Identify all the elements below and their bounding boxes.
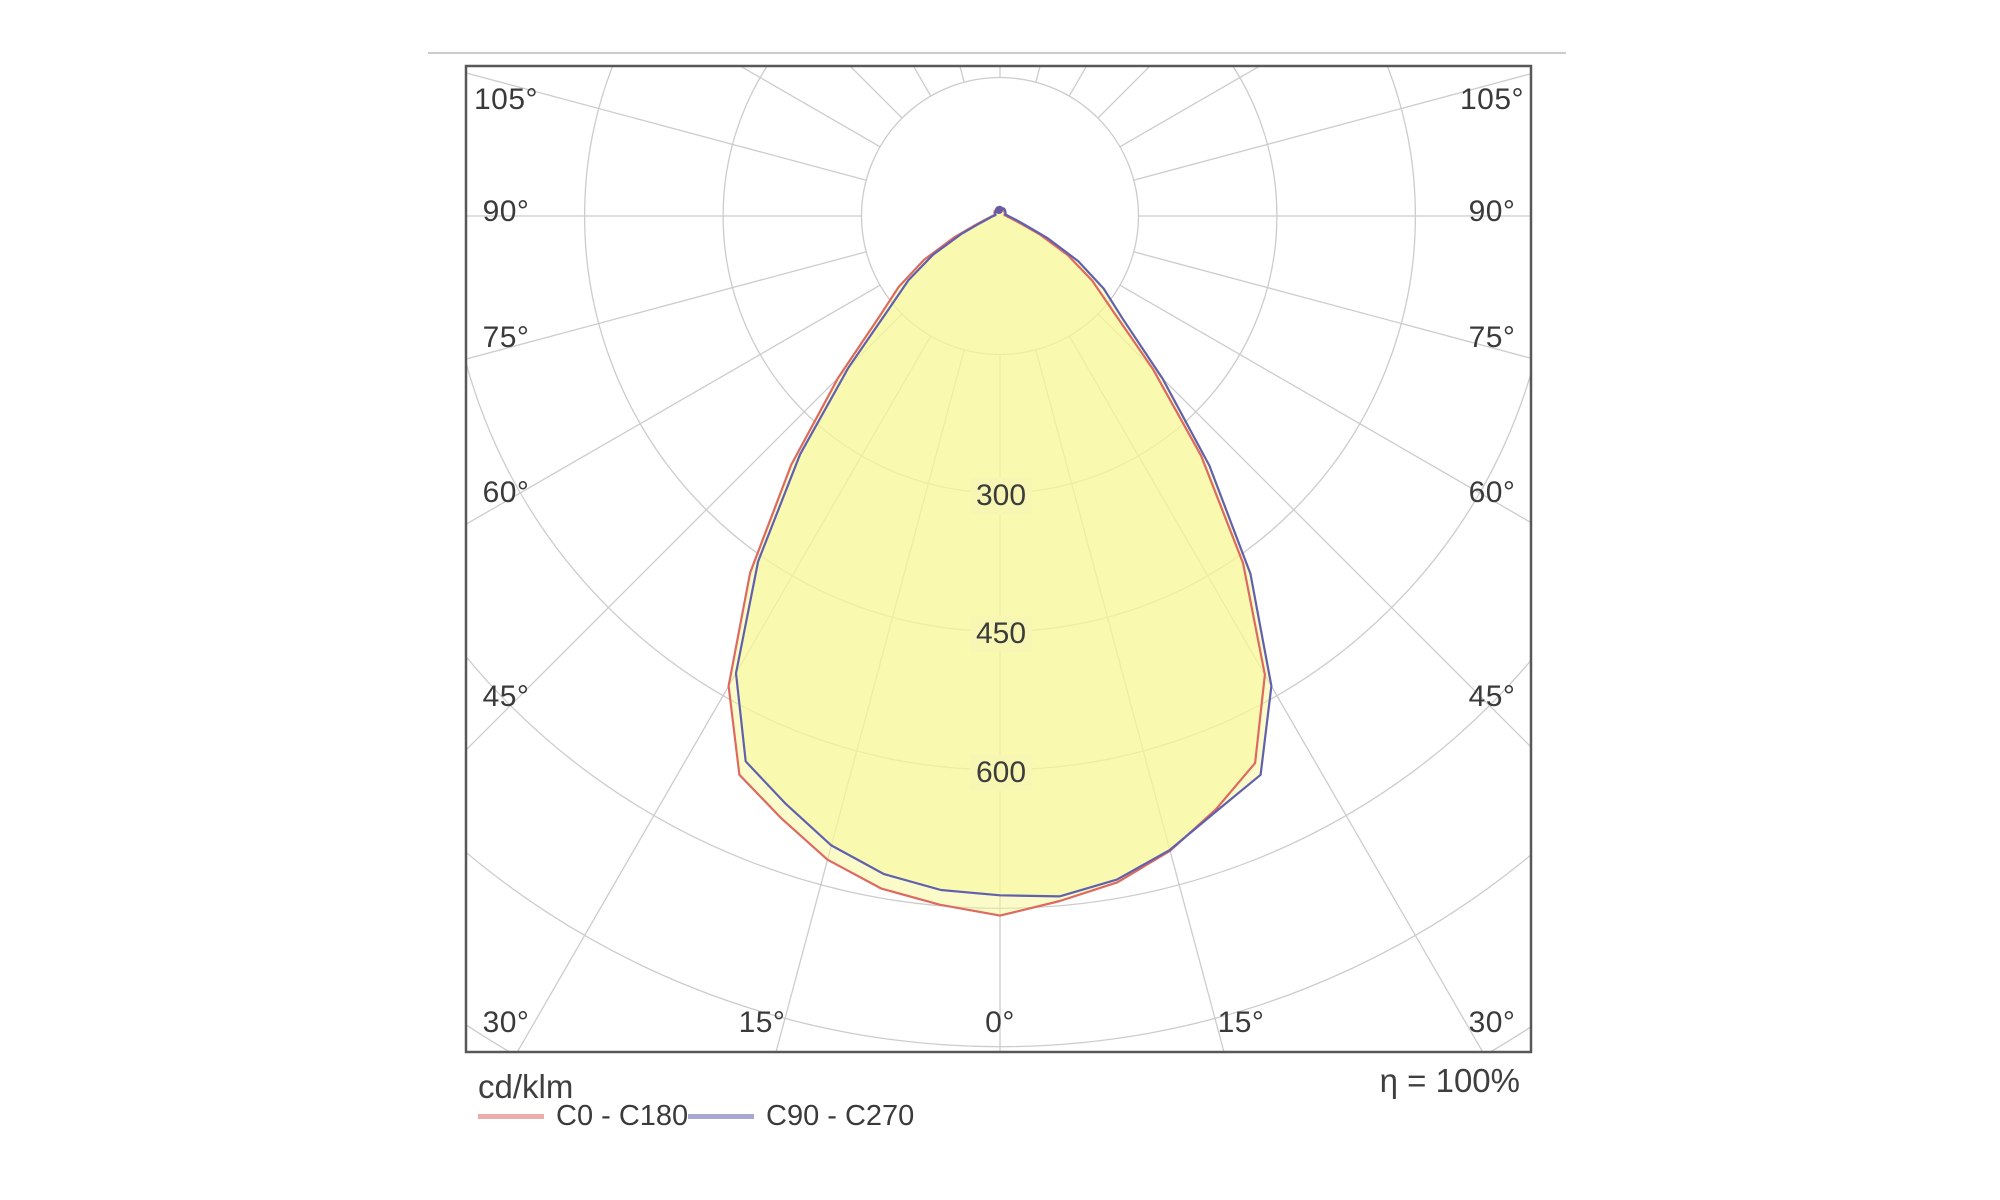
legend-label-c0-c180: C0 - C180	[556, 1100, 688, 1133]
angle-label-bottom-15deg: 15°	[1218, 1006, 1265, 1040]
legend-swatch-c90-c270	[688, 1114, 754, 1119]
legend-item-c90-c270: C90 - C270	[688, 1100, 914, 1133]
angle-label-right-30deg: 30°	[1469, 1006, 1516, 1040]
grid-ray-120	[1120, 0, 1996, 147]
grid-ray-225	[187, 0, 902, 118]
radial-value-label-600: 600	[970, 755, 1032, 791]
grid-ray-135	[1098, 0, 1813, 118]
curve-fill-c90-c270	[736, 207, 1271, 897]
grid-ray-240	[4, 0, 880, 147]
grid-ray-285	[0, 252, 866, 514]
grid-ray-255	[0, 0, 866, 180]
photometric-diagram: 105°90°75°60°45°30°105°90°75°60°45°30°15…	[0, 0, 2000, 1200]
legend-label-c90-c270: C90 - C270	[766, 1100, 914, 1133]
efficiency-label: η = 100%	[1320, 1062, 1520, 1100]
angle-label-left-105deg: 105°	[474, 83, 538, 117]
apex-marker-dot	[995, 206, 1003, 214]
angle-label-bottom-15deg: 15°	[739, 1006, 786, 1040]
radial-value-label-450: 450	[970, 616, 1032, 652]
angle-label-right-75deg: 75°	[1469, 321, 1516, 355]
angle-label-left-30deg: 30°	[483, 1006, 530, 1040]
radial-value-label-300: 300	[970, 478, 1032, 514]
angle-label-left-45deg: 45°	[483, 680, 530, 714]
angle-label-bottom-0deg: 0°	[985, 1006, 1015, 1040]
angle-label-right-60deg: 60°	[1469, 476, 1516, 510]
legend-swatch-c0-c180	[478, 1114, 544, 1119]
grid-ray-75	[1134, 252, 2000, 514]
angle-label-right-45deg: 45°	[1469, 680, 1516, 714]
angle-label-left-60deg: 60°	[483, 476, 530, 510]
angle-label-left-75deg: 75°	[483, 321, 530, 355]
grid-ray-165	[1036, 0, 1298, 82]
angle-label-right-105deg: 105°	[1460, 83, 1524, 117]
angle-label-right-90deg: 90°	[1469, 195, 1516, 229]
legend-item-c0-c180: C0 - C180	[478, 1100, 688, 1133]
angle-label-left-90deg: 90°	[483, 195, 530, 229]
grid-ray-105	[1134, 0, 2000, 180]
grid-ray-195	[702, 0, 964, 82]
curves	[729, 207, 1272, 916]
